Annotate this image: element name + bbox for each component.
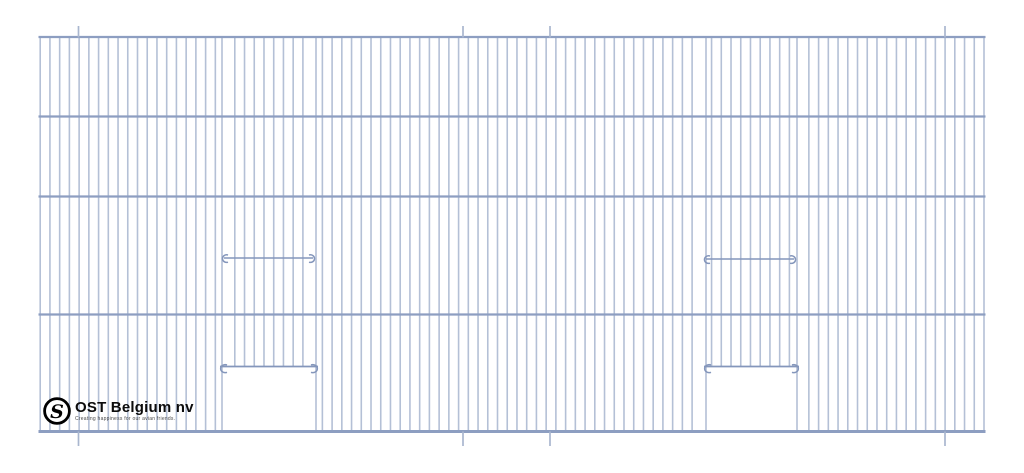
vertical-bars bbox=[40, 37, 984, 432]
brand-name: OST Belgium nv bbox=[75, 400, 194, 416]
perch-wires bbox=[222, 255, 795, 264]
logo-text: OST Belgium nv Creating happiness for ou… bbox=[75, 400, 194, 423]
brand-tagline: Creating happiness for our avian friends… bbox=[75, 416, 194, 423]
horizontal-rails bbox=[39, 37, 986, 432]
door-wires bbox=[220, 365, 799, 373]
ost-monogram-icon: S bbox=[42, 396, 72, 426]
monogram-letter: S bbox=[50, 401, 64, 423]
cage-front-screenshot: S OST Belgium nv Creating happiness for … bbox=[0, 0, 1024, 473]
company-logo: S OST Belgium nv Creating happiness for … bbox=[42, 396, 194, 426]
registration-marks bbox=[79, 26, 946, 446]
